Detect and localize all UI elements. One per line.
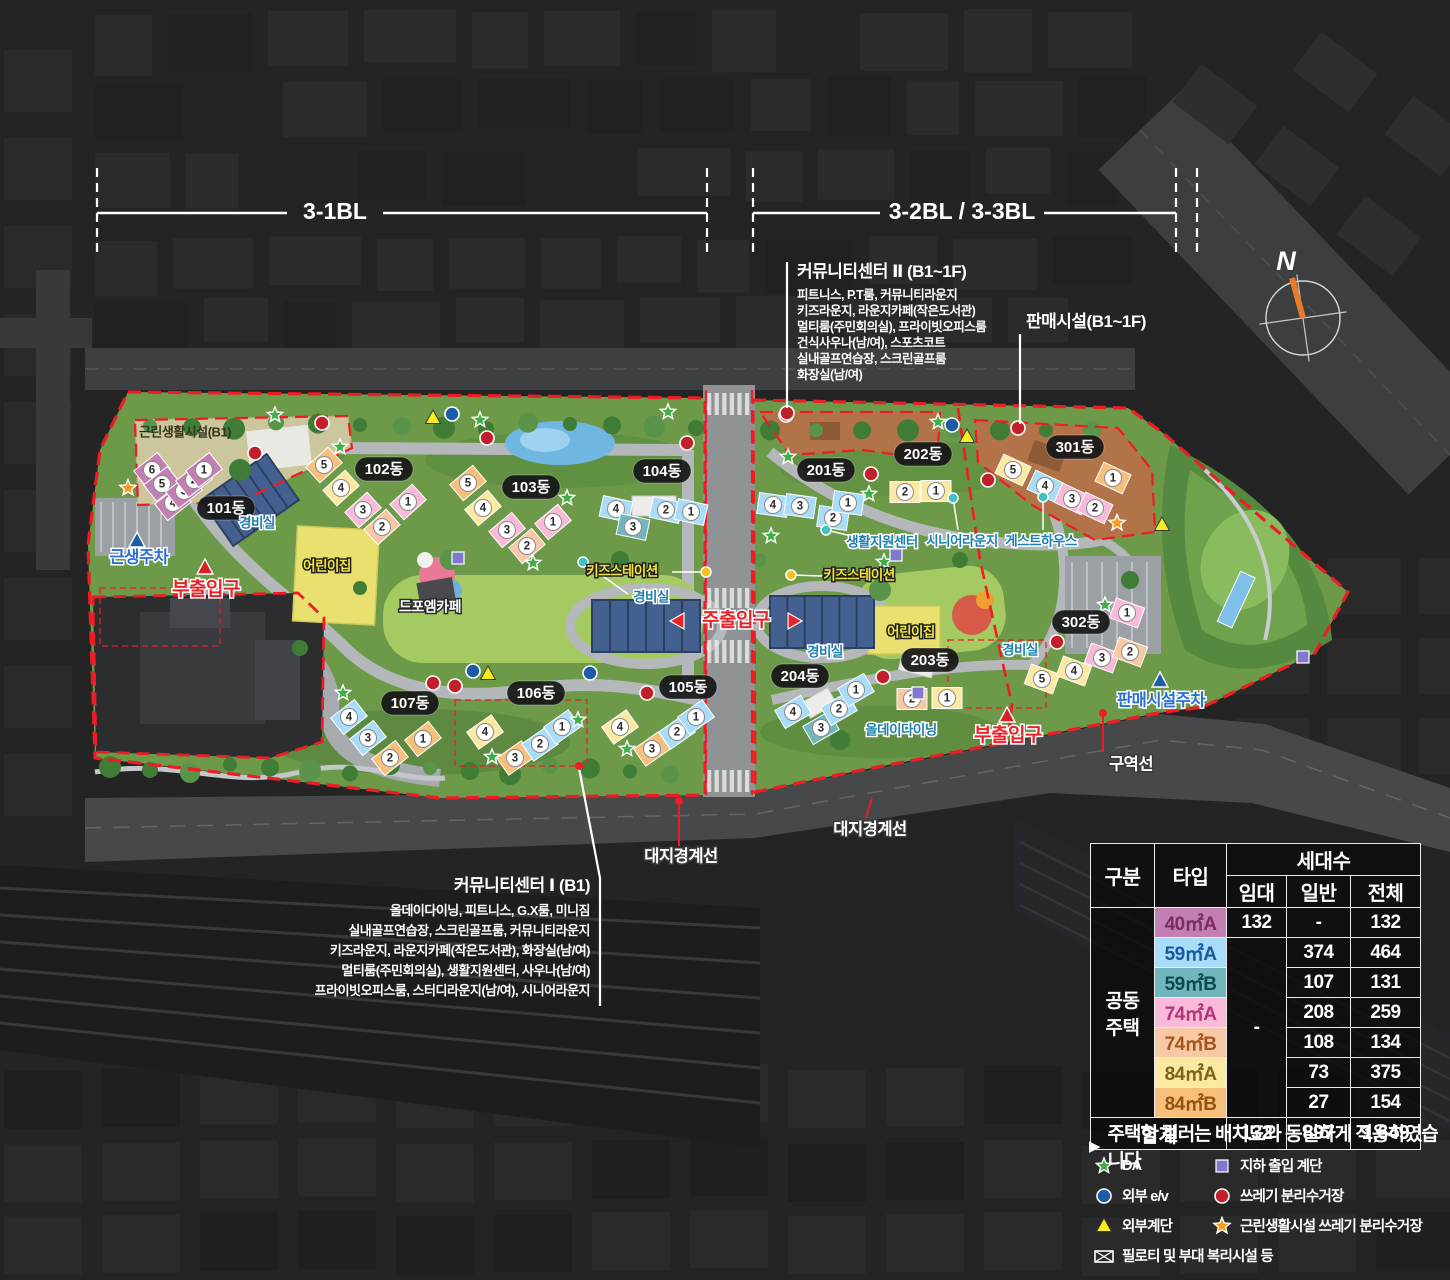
map-label: 키즈스테이션 (586, 563, 658, 579)
building-label-104동: 104동 (633, 459, 691, 483)
map-label: 구역선 (1109, 754, 1153, 773)
unit-number: 2 (524, 541, 530, 553)
map-label: 경비실 (1002, 642, 1038, 658)
facility-marker-dot (948, 493, 958, 503)
building-label-106동: 106동 (507, 681, 565, 705)
unit-number: 1 (944, 693, 951, 705)
unit-number: 1 (201, 465, 208, 477)
unit-number: 3 (797, 501, 803, 513)
building-label-203동: 203동 (901, 648, 959, 672)
unit-number: 2 (537, 739, 543, 751)
unit-number: 1 (845, 498, 852, 510)
map-label: 시니어라운지 (926, 533, 998, 549)
waste-collection-icon (448, 679, 462, 693)
map-label: 부출입구 (974, 724, 1042, 746)
unit-number: 1 (1110, 473, 1117, 485)
unit-number: 3 (1099, 653, 1105, 665)
svg-text:106동: 106동 (517, 685, 556, 702)
map-label: 경비실 (807, 644, 843, 660)
svg-text:107동: 107동 (391, 695, 430, 712)
svg-text:203동: 203동 (911, 652, 950, 669)
exterior-elevator-icon (445, 407, 459, 421)
unit-number: 5 (465, 478, 472, 490)
unit-number: 5 (1039, 674, 1046, 686)
building-202동: 21 (890, 481, 951, 503)
map-label: 판매시설주차 (1117, 690, 1206, 709)
map-label: 생활지원센터 (846, 534, 918, 550)
unit-number: 3 (1069, 494, 1075, 506)
map-label: 부출입구 (172, 578, 240, 600)
waste-collection-icon (248, 446, 262, 460)
map-label: 경비실 (239, 515, 275, 531)
unit-number: 4 (770, 500, 777, 512)
svg-text:301동: 301동 (1056, 439, 1095, 456)
unit-number: 1 (420, 734, 427, 746)
svg-text:202동: 202동 (904, 446, 943, 463)
site-plan-map: 6543215432154321432143214321432143212121… (0, 0, 1450, 1280)
building-label-202동: 202동 (894, 442, 952, 466)
unit-number: 1 (1124, 608, 1131, 620)
unit-number: 2 (902, 487, 908, 499)
unit-number: 5 (1010, 465, 1017, 477)
unit-number: 2 (830, 513, 836, 525)
building-label-301동: 301동 (1046, 435, 1104, 459)
svg-text:105동: 105동 (669, 679, 708, 696)
site-plan-page: 6543215432154321432143214321432143212121… (0, 0, 1450, 1280)
map-label: 근린생활시설(B1) (139, 424, 231, 439)
waste-collection-icon (780, 406, 794, 420)
unit-number: 3 (365, 733, 371, 745)
exterior-elevator-icon (583, 666, 597, 680)
map-label: 드포엠카페 (399, 599, 461, 615)
unit-number: 2 (836, 704, 842, 716)
unit-number: 4 (1042, 481, 1049, 493)
unit-number: 2 (379, 522, 385, 534)
unit-number: 2 (387, 753, 393, 765)
building-label-302동: 302동 (1052, 610, 1110, 634)
unit-number: 1 (688, 507, 695, 519)
unit-number: 2 (663, 505, 669, 517)
waste-collection-icon (315, 416, 329, 430)
unit-number: 3 (512, 753, 518, 765)
facility-marker-dot (786, 570, 796, 580)
map-label: 경비실 (633, 589, 669, 605)
unit-number: 4 (1071, 666, 1078, 678)
waste-collection-icon (981, 473, 995, 487)
parking-roof-structure (770, 596, 874, 648)
unit-number: 4 (346, 712, 353, 724)
waste-collection-icon (864, 467, 878, 481)
unit-number: 3 (630, 522, 636, 534)
waste-collection-icon (876, 670, 890, 684)
unit-number: 5 (321, 460, 328, 472)
unit-number: 2 (674, 727, 680, 739)
unit-number: 6 (149, 465, 155, 477)
svg-text:104동: 104동 (643, 463, 682, 480)
unit-number: 4 (617, 722, 624, 734)
facility-marker-dot (701, 567, 711, 577)
unit-number: 2 (1127, 647, 1133, 659)
unit-number: 3 (649, 744, 655, 756)
compass-north-label: N (1276, 246, 1296, 276)
basement-entry-icon (890, 549, 902, 561)
building-label-201동: 201동 (797, 458, 855, 482)
svg-text:101동: 101동 (207, 500, 246, 517)
unit-number: 3 (360, 505, 366, 517)
basement-entry-icon (912, 687, 924, 699)
svg-text:204동: 204동 (781, 668, 820, 685)
unit-number: 1 (693, 712, 700, 724)
building-label-107동: 107동 (381, 691, 439, 715)
unit-number: 1 (933, 486, 940, 498)
map-label: 대지경계선 (833, 819, 906, 838)
building-label-103동: 103동 (502, 475, 560, 499)
map-label: 게스트하우스 (1005, 533, 1078, 549)
unit-number: 2 (1092, 503, 1098, 515)
unit-number: 1 (559, 722, 566, 734)
building-label-102동: 102동 (355, 457, 413, 481)
waste-collection-icon (480, 431, 494, 445)
unit-number: 5 (159, 479, 166, 491)
unit-number: 4 (790, 707, 797, 719)
unit-number: 4 (338, 483, 345, 495)
svg-text:201동: 201동 (807, 462, 846, 479)
waste-collection-icon (1050, 635, 1064, 649)
unit-number: 1 (853, 685, 860, 697)
unit-number: 1 (405, 497, 412, 509)
waste-collection-icon (1011, 421, 1025, 435)
svg-text:102동: 102동 (365, 461, 404, 478)
facility-marker-dot (821, 525, 831, 535)
svg-text:103동: 103동 (512, 479, 551, 496)
map-label: 올데이다이닝 (865, 722, 937, 738)
map-label: 어린이집 (303, 558, 351, 574)
basement-entry-icon (1297, 651, 1309, 663)
map-label: 대지경계선 (644, 846, 717, 865)
map-label: 근생주차 (110, 547, 170, 566)
svg-text:302동: 302동 (1062, 614, 1101, 631)
basement-entry-icon (452, 552, 464, 564)
unit-number: 3 (504, 525, 510, 537)
map-label: 키즈스테이션 (823, 567, 895, 583)
map-label: 어린이집 (887, 624, 935, 640)
section-label: 3-2BL / 3-3BL (889, 198, 1036, 224)
exterior-elevator-icon (945, 418, 959, 432)
waste-collection-icon (680, 436, 694, 450)
exterior-elevator-icon (466, 664, 480, 678)
building-label-204동: 204동 (771, 664, 829, 688)
unit-number: 1 (550, 517, 557, 529)
facility-marker-dot (1038, 492, 1048, 502)
unit-number: 4 (613, 504, 620, 516)
unit-number: 4 (482, 727, 489, 739)
building-label-105동: 105동 (659, 675, 717, 699)
unit-number: 3 (818, 723, 824, 735)
map-label: 주출입구 (702, 609, 770, 631)
waste-collection-icon (426, 676, 440, 690)
unit-number: 4 (480, 503, 487, 515)
section-label: 3-1BL (303, 198, 367, 224)
waste-collection-icon (640, 686, 654, 700)
